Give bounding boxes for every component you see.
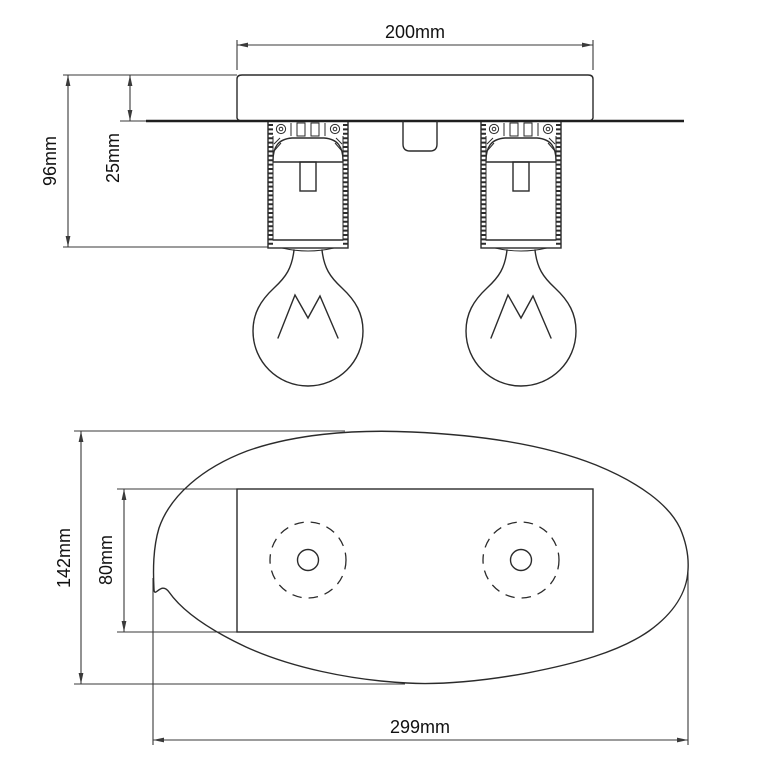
lamp-position-left-dashed-circle [270,522,346,598]
junction-box [403,121,437,151]
dim-label-overall-height: 96mm [40,136,60,186]
arrowhead-icon [66,75,71,86]
dim-label-canopy-width: 200mm [385,22,445,42]
arrowhead-icon [66,236,71,247]
arrowhead-icon [79,673,84,684]
arrowhead-icon [128,75,133,86]
dim-label-overall-width: 142mm [54,528,74,588]
arrowhead-icon [582,43,593,48]
arrowhead-icon [122,621,127,632]
lamp-socket-right [466,121,576,386]
lamp-socket-left [253,121,363,386]
dim-label-overall-length: 299mm [390,717,450,737]
base-outline [154,431,689,683]
arrowhead-icon [237,43,248,48]
canopy-plate [237,75,593,121]
dim-label-canopy-depth: 25mm [103,133,123,183]
arrowhead-icon [128,110,133,121]
lamp-position-right-dashed-circle [483,522,559,598]
plan-view: 142mm 80mm 299mm [54,431,688,745]
lamp-hole-left [298,550,319,571]
backplate-rect [237,489,593,632]
arrowhead-icon [677,738,688,743]
drawing-canvas: 200mm 96mm 25mm 142mm [0,0,772,771]
front-elevation-view: 200mm 96mm 25mm [40,22,684,386]
arrowhead-icon [153,738,164,743]
arrowhead-icon [79,431,84,442]
lamp-hole-right [511,550,532,571]
technical-drawing-page: 200mm 96mm 25mm 142mm [0,0,772,771]
arrowhead-icon [122,489,127,500]
dim-label-backplate-width: 80mm [96,535,116,585]
